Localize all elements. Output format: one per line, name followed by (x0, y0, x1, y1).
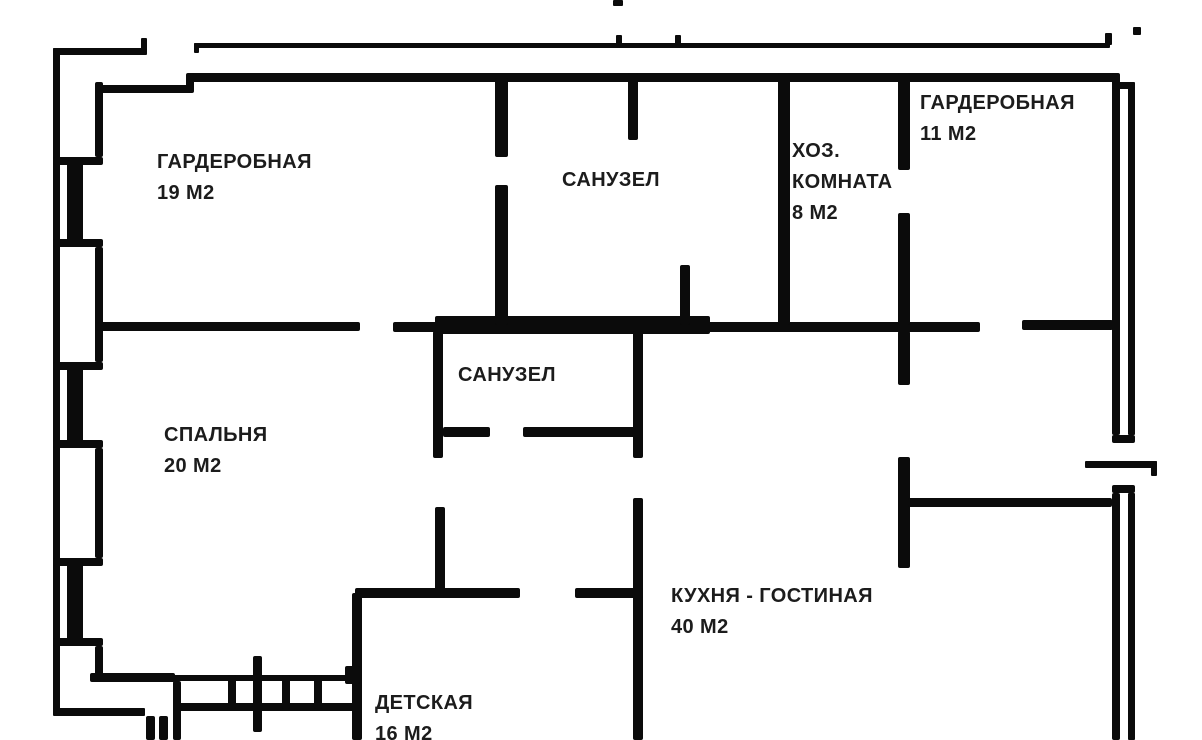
exterior-line-top (194, 43, 1110, 48)
window-right-cross-hook (1151, 461, 1157, 476)
exterior-line-top-tick-b (675, 35, 681, 44)
bedroom-bottom-wall (90, 673, 175, 682)
bathroom-mid-right-wall (633, 331, 643, 458)
nursery-top-wall-left (355, 588, 520, 598)
exterior-line-top-left (53, 48, 147, 55)
wall-mid-horizontal-center-thick (435, 316, 710, 334)
exterior-line-top-right-hook (1105, 33, 1112, 45)
kitchen-partition-wall-a (898, 331, 910, 385)
kitchen-partition-wall-b (898, 457, 910, 568)
room-name: ГАРДЕРОБНАЯ (920, 88, 1075, 119)
window-right-sill-top (1112, 435, 1135, 443)
utility-room-right-wall-a (898, 73, 910, 170)
bathroom-top-left-wall-a (495, 78, 508, 157)
window-bottom-bay-bottom-line (173, 703, 353, 711)
kitchen-left-wall (633, 498, 643, 740)
exterior-line-top-tick-a (616, 35, 622, 44)
window-left-1-sill-bottom (53, 239, 103, 247)
room-name: КУХНЯ - ГОСТИНАЯ (671, 581, 873, 612)
room-label-wardrobe-11: ГАРДЕРОБНАЯ 11 М2 (920, 88, 1075, 150)
wall-mid-horizontal-left (97, 322, 360, 331)
window-left-3-sill-bottom (53, 638, 103, 646)
bathroom-mid-bottom-wall-left (443, 427, 490, 437)
room-label-utility-room: ХОЗ. КОМНАТА 8 М2 (792, 136, 893, 229)
exterior-line-top-left-tick (141, 38, 147, 50)
exterior-wall-right-top-ledge (1112, 82, 1135, 89)
room-area: 16 М2 (375, 719, 473, 740)
exterior-wall-right-outer-b (1128, 493, 1135, 740)
top-right-dot (1133, 27, 1141, 35)
room-area: 19 М2 (157, 178, 312, 209)
window-left-2-mullion (67, 366, 83, 444)
window-bottom-bay-left-post (173, 681, 181, 740)
window-bottom-bay-mullion-4 (314, 675, 322, 709)
right-room-bottom-wall (908, 498, 1112, 507)
room-label-bathroom-mid: САНУЗЕЛ (458, 360, 556, 391)
room-name: ГАРДЕРОБНАЯ (157, 147, 312, 178)
room-area: 20 М2 (164, 451, 268, 482)
interior-wall-left-a (95, 82, 103, 157)
window-left-3-mullion (67, 562, 83, 642)
wall-mid-horizontal-right (1022, 320, 1113, 330)
bedroom-door-stub-wall (435, 507, 445, 593)
room-area: 40 М2 (671, 612, 873, 643)
window-bottom-bay-mullion-1 (228, 675, 236, 709)
room-name-line1: ХОЗ. (792, 136, 893, 167)
interior-wall-left-b (95, 247, 103, 362)
floor-plan: ГАРДЕРОБНАЯ 19 М2 САНУЗЕЛ ХОЗ. КОМНАТА 8… (0, 0, 1202, 740)
room-name: САНУЗЕЛ (562, 165, 660, 196)
interior-wall-top (190, 73, 1118, 82)
bathroom-top-partition-stub-lower (680, 265, 690, 325)
window-right-cross-tick (1085, 461, 1157, 468)
bathroom-top-left-wall-b (495, 185, 508, 325)
utility-room-right-wall-b (898, 213, 910, 325)
interior-wall-left-c (95, 448, 103, 558)
room-name: ДЕТСКАЯ (375, 688, 473, 719)
room-area: 11 М2 (920, 119, 1075, 150)
exterior-line-top-left-hook (194, 43, 199, 53)
window-left-1-mullion (67, 160, 83, 244)
room-area: 8 М2 (792, 198, 893, 229)
exterior-wall-right-inner-a (1112, 73, 1120, 435)
room-label-wardrobe-19: ГАРДЕРОБНАЯ 19 М2 (157, 147, 312, 209)
window-bottom-bay-mullion-2-cross (253, 656, 262, 732)
bathroom-mid-left-wall (433, 331, 443, 458)
window-bottom-bay-right-junction (345, 666, 360, 684)
room-label-bathroom-top: САНУЗЕЛ (562, 165, 660, 196)
window-left-2-sill-bottom (53, 440, 103, 448)
bathroom-mid-bottom-wall-right (523, 427, 643, 437)
interior-wall-top-left (97, 85, 190, 93)
room-name: САНУЗЕЛ (458, 360, 556, 391)
entry-opening-bar-2 (159, 716, 168, 740)
exterior-wall-right-outer-a (1128, 82, 1135, 435)
entry-opening-bar-1 (146, 716, 155, 740)
bathroom-top-right-wall (778, 73, 790, 325)
room-name-line2: КОМНАТА (792, 167, 893, 198)
nursery-top-wall-right (575, 588, 643, 598)
room-name: СПАЛЬНЯ (164, 420, 268, 451)
exterior-wall-right-inner-b (1112, 493, 1120, 740)
window-right-sill-bottom (1112, 485, 1135, 493)
room-label-nursery: ДЕТСКАЯ 16 М2 (375, 688, 473, 740)
top-edge-mark (613, 0, 623, 6)
room-label-bedroom: СПАЛЬНЯ 20 М2 (164, 420, 268, 482)
exterior-wall-bottom-left (53, 708, 145, 716)
room-label-kitchen-living: КУХНЯ - ГОСТИНАЯ 40 М2 (671, 581, 873, 643)
bathroom-top-partition-stub-upper (628, 73, 638, 140)
exterior-wall-left-outer (53, 48, 60, 710)
window-bottom-bay-mullion-3 (282, 675, 290, 709)
